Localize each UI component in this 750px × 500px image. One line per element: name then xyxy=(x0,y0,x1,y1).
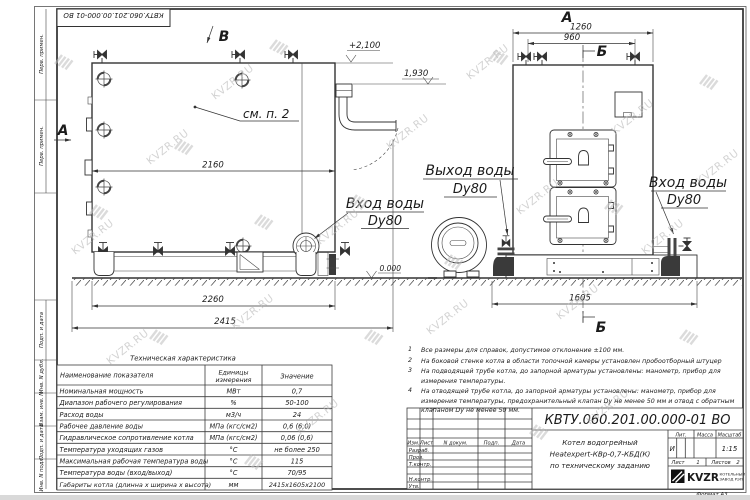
lit-value: И xyxy=(670,445,676,453)
sheets-label: Листов xyxy=(710,460,730,466)
strip-label: Инв. N дубл. xyxy=(39,359,45,394)
sheet-value: 1 xyxy=(696,460,699,466)
note-text: Все размеры для справок, допустимое откл… xyxy=(421,346,745,355)
table-row: Габариты котла (длинна х ширина х высота… xyxy=(60,481,326,489)
door-latch xyxy=(579,151,589,166)
col-podp: Подп. xyxy=(484,440,500,446)
side-strip: Перв. примен. Перв. примен. Подп. и дата… xyxy=(39,34,45,491)
strip-label: Подп. и дата xyxy=(39,312,45,348)
watermark-text: KVZR.RU xyxy=(424,297,471,337)
row-value: 50-100 xyxy=(285,399,308,407)
row-name: Расход воды xyxy=(60,411,104,419)
row-unit: м3/ч xyxy=(226,411,241,419)
note-number: 1 xyxy=(408,346,421,355)
row-unit: °С xyxy=(230,446,238,454)
safety-valve-icon xyxy=(534,53,547,66)
row-value: 2415х1605х2100 xyxy=(269,481,325,489)
row-value: 0,06 (0,6) xyxy=(281,434,313,442)
level-top: +2,100 xyxy=(349,41,380,51)
watermark-text: KVZR.RU xyxy=(464,42,511,82)
level-mid: 1,930 xyxy=(404,69,428,79)
side-base xyxy=(94,252,339,276)
dim-2160: 2160 xyxy=(202,161,224,171)
product-name-line1: Котел водогрейный xyxy=(562,438,638,447)
spec-table: Техническая характеристика Наименование … xyxy=(57,355,332,491)
note-text: На подводящей трубе котла, до запорной а… xyxy=(421,367,745,385)
watermark-text: KVZR.RU xyxy=(229,292,276,332)
row-value: 0,7 xyxy=(292,388,303,396)
row-unit: % xyxy=(230,399,236,407)
notes-list: 1 Все размеры для справок, допустимое от… xyxy=(408,346,745,416)
row-name: Температура уходящих газов xyxy=(60,446,164,454)
inlet-front-callout-line2: Dy80 xyxy=(667,193,701,208)
title-block: КВТУ.060.201.00.000-01 ВО Изм. Лист N до… xyxy=(407,408,745,490)
lower-door xyxy=(544,188,617,245)
safety-valve-icon xyxy=(518,53,531,66)
drain-valve-icon xyxy=(341,243,350,256)
inlet-front-callout-line1: Вход воды xyxy=(649,175,727,191)
section-label-a: А xyxy=(57,123,69,139)
col-header-value: Значение xyxy=(280,373,313,381)
row-unit: МВт xyxy=(226,388,240,396)
row-value: 70/95 xyxy=(287,469,306,477)
row-value: 24 xyxy=(293,411,301,419)
drawing-canvas: Перв. примен. Перв. примен. Подп. и дата… xyxy=(0,0,750,500)
mass-header: Масса xyxy=(697,432,713,438)
row-name: Температура воды (вход/выход) xyxy=(60,469,173,477)
outlet-callout-line2: Dy80 xyxy=(453,182,487,197)
note-number: 4 xyxy=(408,387,421,415)
ground-hatch xyxy=(428,279,742,286)
sheet-label: Лист xyxy=(670,460,685,466)
spec-table-title: Техническая характеристика xyxy=(130,355,236,363)
safety-valve-icon xyxy=(232,51,245,64)
row-utv: Утв. xyxy=(409,484,420,490)
see-note-label: см. п. 2 xyxy=(243,107,289,121)
row-razrab: Разраб. xyxy=(409,448,429,454)
strip-label: Подп. и дата xyxy=(39,424,45,460)
note-number: 2 xyxy=(408,357,421,366)
flue-duct xyxy=(336,84,398,170)
row-tkontr: Т.контр. xyxy=(409,462,431,468)
section-label-b-top: Б xyxy=(597,44,608,60)
row-unit: °С xyxy=(230,469,238,477)
note-item: 4 На отводящей трубе котла, до запорной … xyxy=(408,387,745,415)
dim-960: 960 xyxy=(564,33,580,43)
note-number: 3 xyxy=(408,367,421,385)
col-data: Дата xyxy=(511,440,525,446)
drawing-sheet: Перв. примен. Перв. примен. Подп. и дата… xyxy=(0,0,750,500)
row-prov: Пров. xyxy=(409,455,424,461)
level-zero: 0.000 xyxy=(380,264,402,273)
watermark-bars-icon xyxy=(700,75,718,89)
watermark-bars-icon xyxy=(150,330,168,344)
note-text: На боковой стенке котла в области топочн… xyxy=(421,357,745,366)
strip-label: Перв. примен. xyxy=(39,126,45,166)
scale-header: Масштаб xyxy=(718,432,742,438)
lit-header: Лит. xyxy=(674,432,687,438)
row-name: Гидравлическое сопротивление котла xyxy=(60,434,194,442)
stamp-doc-number: КВТУ.060.201.00.000-01 ВО xyxy=(63,11,164,19)
row-name: Рабочее давление воды xyxy=(60,423,143,431)
scale-value: 1:15 xyxy=(722,445,738,453)
note-item: 1 Все размеры для справок, допустимое от… xyxy=(408,346,745,355)
col-header-unit1: Единицы xyxy=(219,370,249,377)
boiler-front-view: А 1260 960 Б xyxy=(423,10,742,336)
blower-fan xyxy=(432,218,487,278)
row-value: 115 xyxy=(291,458,304,466)
col-header-unit2: измерения xyxy=(216,377,252,384)
strip-label: Инв. N подл. xyxy=(39,457,45,492)
note-item: 2 На боковой стенке котла в области топо… xyxy=(408,357,745,366)
watermark-bars-icon xyxy=(365,330,383,344)
section-label-b-bottom: Б xyxy=(596,320,607,336)
top-stamp: КВТУ.060.201.00.000-01 ВО xyxy=(57,9,170,27)
company-line2: ЗАВОД РЭП xyxy=(720,477,743,482)
row-unit: мм xyxy=(229,481,239,489)
dim-2260: 2260 xyxy=(202,295,224,305)
logo-text: KVZR xyxy=(687,472,719,484)
col-header-name: Наименование показателя xyxy=(60,372,153,380)
row-name: Номинальная мощность xyxy=(60,388,144,396)
outlet-callout-line1: Выход воды xyxy=(425,163,514,179)
row-name: Максимальная рабочая температура воды xyxy=(60,458,209,466)
note-text: На отводящей трубе котла, до запорной ар… xyxy=(421,387,745,415)
row-value: не более 250 xyxy=(274,446,320,454)
inlet-callout-line1: Вход воды xyxy=(346,196,424,212)
row-unit: °С xyxy=(230,458,238,466)
safety-valve-icon xyxy=(627,53,640,66)
section-label-b: В xyxy=(219,29,230,45)
ground-hatch xyxy=(72,279,437,286)
row-unit: МПа (кгс/см2) xyxy=(209,434,257,442)
dim-1260: 1260 xyxy=(570,23,592,33)
col-list: Лист xyxy=(419,440,434,446)
row-nkontr: Н.контр. xyxy=(409,477,432,483)
row-name: Диапазон рабочего регулирования xyxy=(59,399,183,407)
watermark-text: KVZR.RU xyxy=(384,112,431,152)
product-name-line2: Heatexpert-КВр-0,7-КБД(К) xyxy=(550,450,651,459)
safety-valve-icon xyxy=(285,51,298,64)
row-unit: МПа (кгс/см2) xyxy=(209,423,257,431)
watermark-bars-icon xyxy=(680,330,698,344)
product-name-line3: по техническому заданию xyxy=(550,461,650,470)
sheets-value: 2 xyxy=(736,460,739,466)
strip-label: Перв. примен. xyxy=(39,34,45,74)
col-ndoc: N докум. xyxy=(443,440,467,446)
inlet-callout-line2: Dy80 xyxy=(368,214,402,229)
door-latch xyxy=(579,208,589,223)
note-item: 3 На подводящей трубе котла, до запорной… xyxy=(408,367,745,385)
watermark-text: KVZR.RU xyxy=(554,282,601,322)
col-izm: Изм. xyxy=(407,440,419,446)
scan-edge xyxy=(0,495,750,500)
row-name: Габариты котла (длинна х ширина х высота… xyxy=(60,481,212,489)
safety-valve-icon xyxy=(94,51,107,64)
strip-label: Взам. инв. N xyxy=(39,392,45,426)
